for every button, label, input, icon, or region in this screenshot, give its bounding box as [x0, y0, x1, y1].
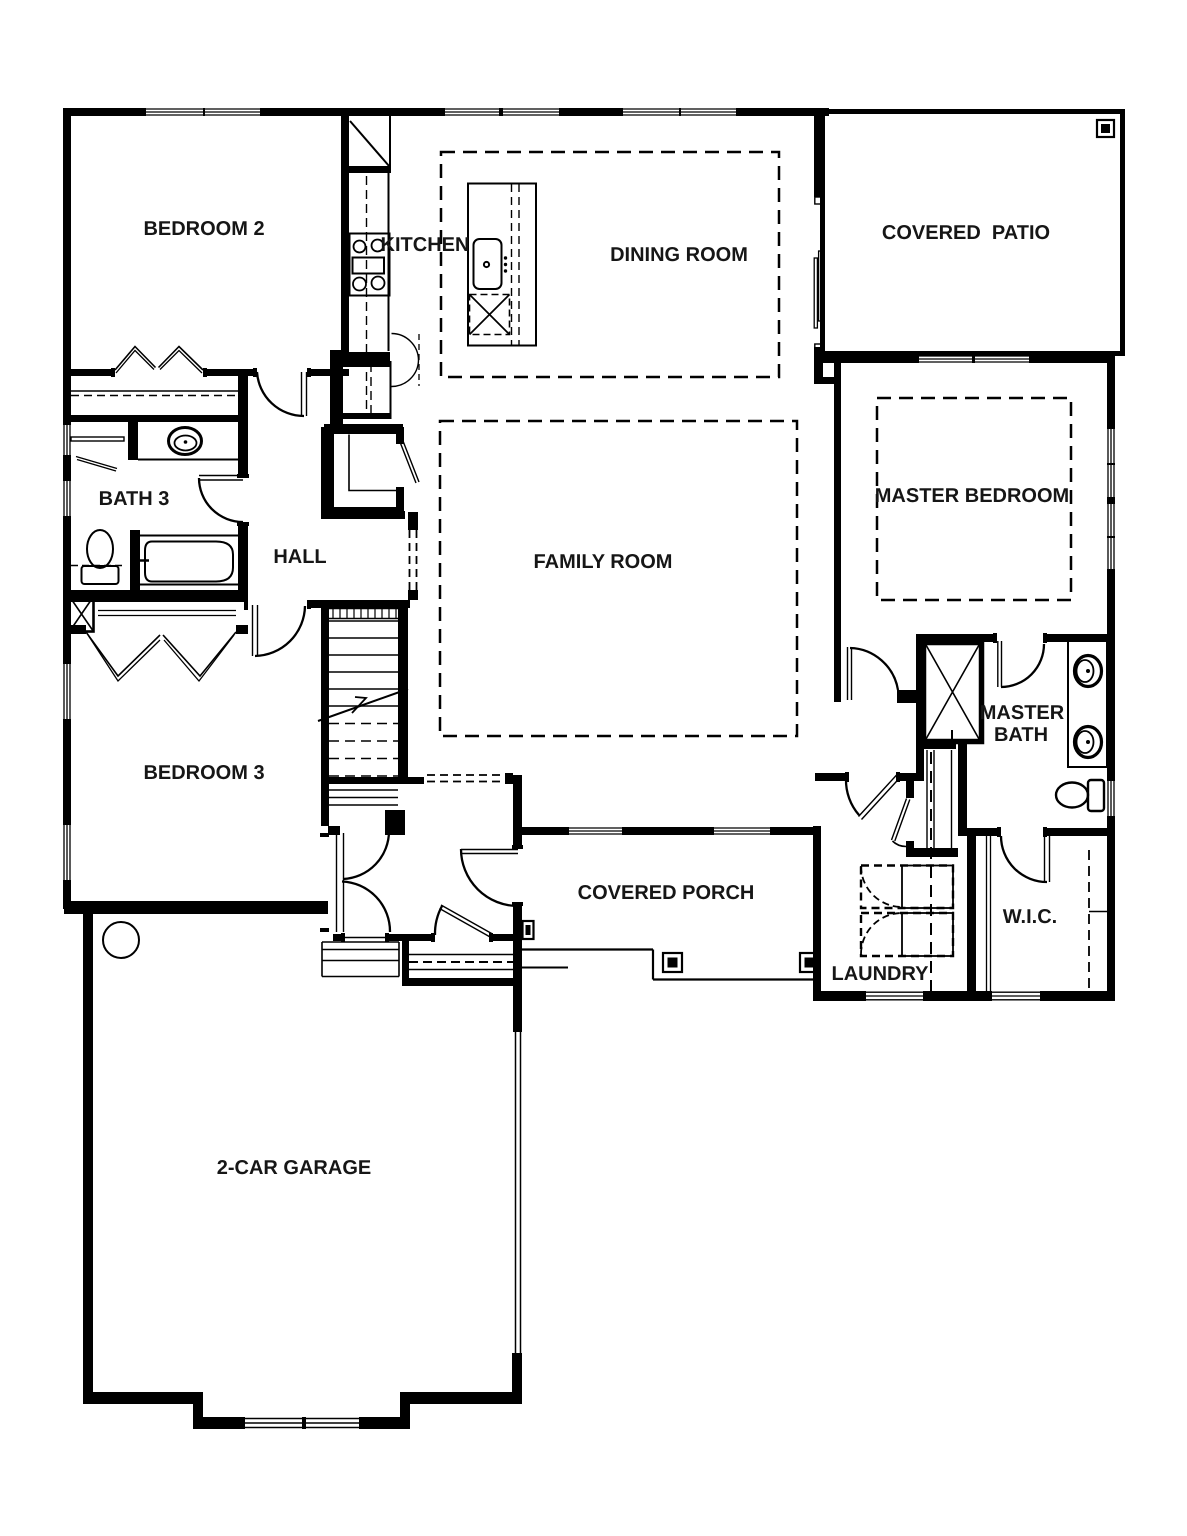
svg-text:2-CAR GARAGE: 2-CAR GARAGE: [217, 1157, 371, 1179]
svg-text:MASTER: MASTER: [980, 702, 1065, 724]
svg-text:BEDROOM 3: BEDROOM 3: [143, 762, 264, 784]
svg-text:LAUNDRY: LAUNDRY: [831, 963, 929, 985]
svg-text:HALL: HALL: [273, 546, 326, 568]
svg-text:BEDROOM 2: BEDROOM 2: [143, 218, 264, 240]
svg-text:W.I.C.: W.I.C.: [1003, 906, 1057, 928]
svg-text:KITCHEN: KITCHEN: [381, 234, 470, 256]
svg-text:BATH: BATH: [994, 724, 1048, 746]
svg-text:DINING ROOM: DINING ROOM: [610, 244, 748, 266]
svg-text:FAMILY ROOM: FAMILY ROOM: [534, 551, 673, 573]
svg-text:COVERED PATIO: COVERED PATIO: [882, 222, 1050, 244]
svg-text:BATH 3: BATH 3: [99, 488, 170, 510]
svg-text:MASTER BEDROOM: MASTER BEDROOM: [875, 485, 1069, 507]
svg-text:COVERED PORCH: COVERED PORCH: [578, 882, 755, 904]
